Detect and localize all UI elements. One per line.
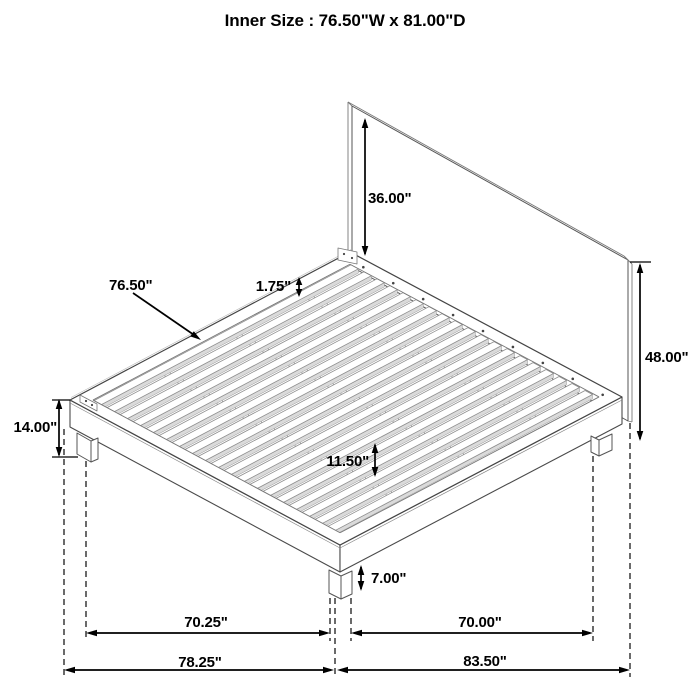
dim-leg-height: 7.00" — [371, 570, 406, 587]
dim-leg-span-side: 70.00" — [458, 614, 502, 631]
bed-frame-drawing: Inner Size : 76.50"W x 81.00"D 36.00" 76… — [0, 0, 700, 700]
dim-overall-depth: 83.50" — [463, 653, 507, 670]
dim-deck-height: 14.00" — [14, 419, 58, 436]
dim-headboard-total-height: 48.00" — [645, 349, 689, 366]
dim-leg-span-front: 70.25" — [184, 614, 228, 631]
dim-slat-length: 76.50" — [109, 277, 153, 294]
dim-overall-width: 78.25" — [178, 654, 222, 671]
dim-slat-thickness: 1.75" — [256, 278, 291, 295]
inner-size-title: Inner Size : 76.50"W x 81.00"D — [225, 11, 466, 30]
dim-headboard-above-deck: 36.00" — [368, 190, 412, 207]
dim-under-bed-clearance: 11.50" — [326, 453, 369, 470]
bed-frame-diagram: Inner Size : 76.50"W x 81.00"D 36.00" 76… — [0, 0, 700, 700]
